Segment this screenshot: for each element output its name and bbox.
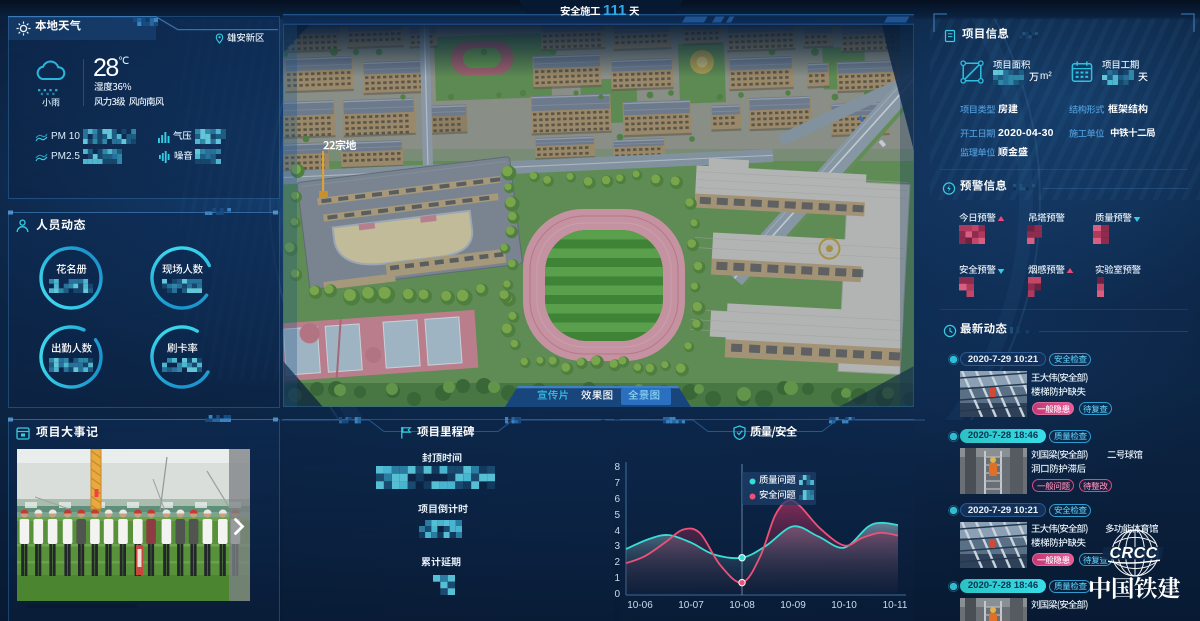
svg-text:CRCC: CRCC xyxy=(1110,545,1158,562)
